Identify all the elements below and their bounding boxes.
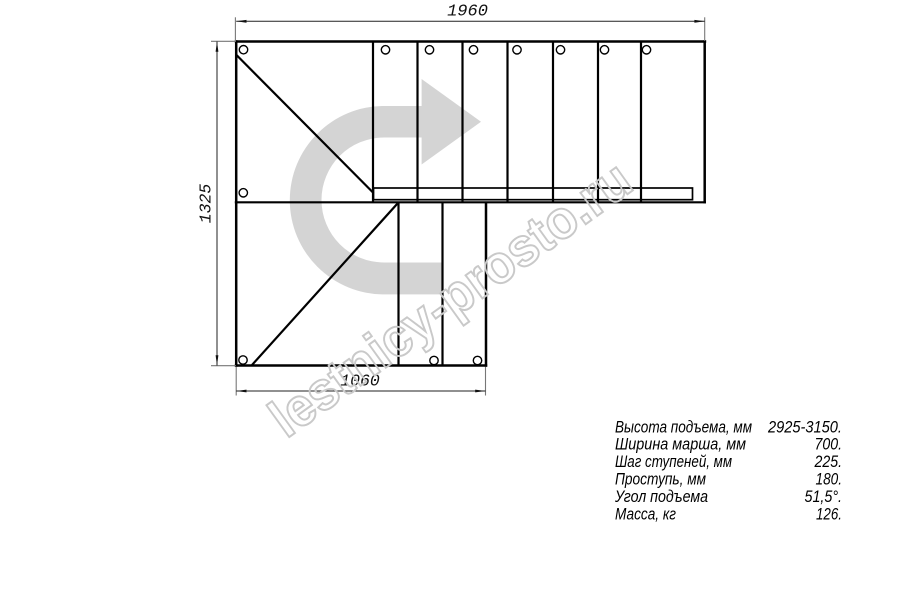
svg-text:Высота подъема, мм: Высота подъема, мм xyxy=(615,417,752,436)
svg-text:Угол подъема: Угол подъема xyxy=(614,487,708,506)
svg-text:1325: 1325 xyxy=(197,184,216,224)
svg-text:225.: 225. xyxy=(814,452,842,471)
svg-text:51,5°.: 51,5°. xyxy=(805,487,843,506)
svg-text:126.: 126. xyxy=(816,505,842,524)
svg-text:Ширина марша, мм: Ширина марша, мм xyxy=(615,435,746,454)
svg-text:2925-3150.: 2925-3150. xyxy=(767,417,842,436)
svg-text:Проступь, мм: Проступь, мм xyxy=(615,470,706,489)
svg-text:Шаг ступеней, мм: Шаг ступеней, мм xyxy=(615,452,732,471)
svg-text:Масса, кг: Масса, кг xyxy=(615,505,676,524)
svg-text:1960: 1960 xyxy=(447,3,488,22)
svg-text:180.: 180. xyxy=(816,470,843,489)
svg-text:700.: 700. xyxy=(815,435,843,454)
